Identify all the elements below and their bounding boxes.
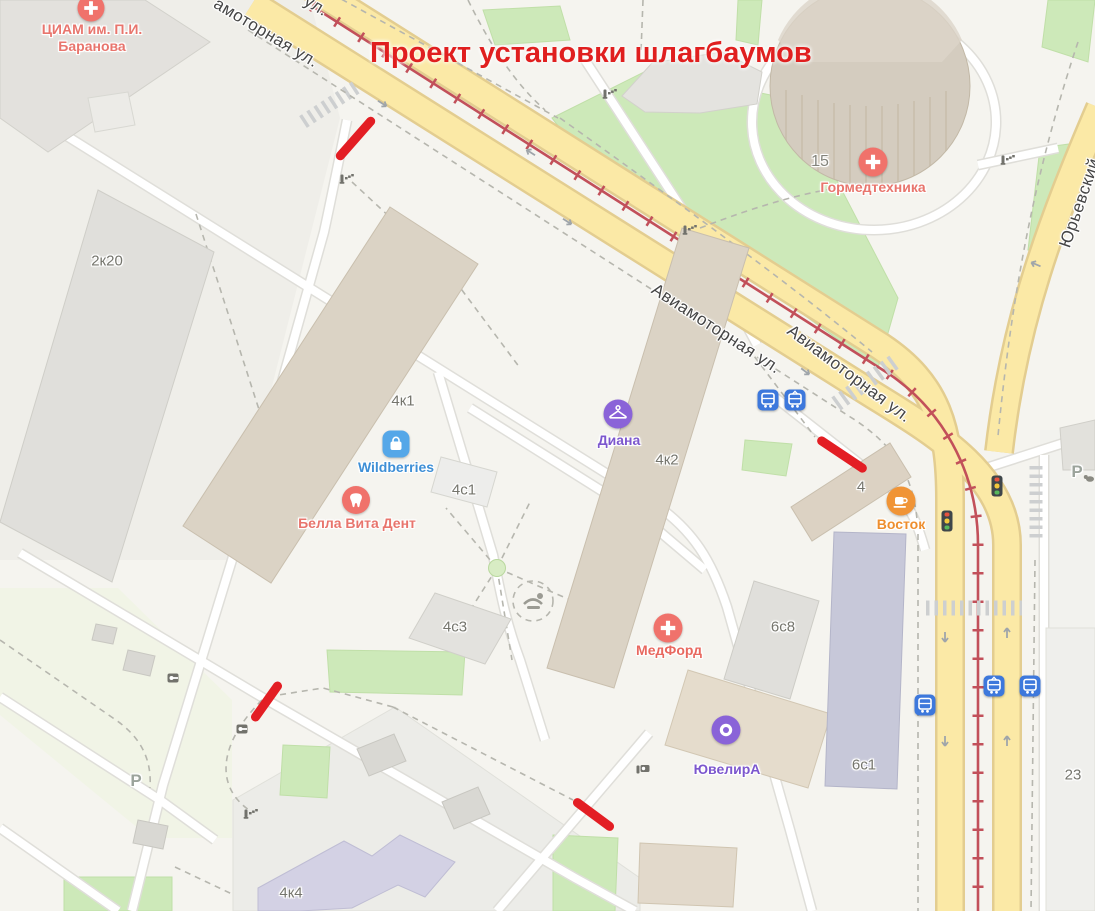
- traffic-light-icon: [942, 511, 953, 532]
- barrier-gate-icon: [339, 170, 356, 185]
- barrier-gate-icon: [1000, 151, 1017, 166]
- building-label-6s1: 6с1: [852, 757, 876, 774]
- traffic-light-icon: [992, 476, 1003, 497]
- building-label-4s3: 4с3: [443, 619, 467, 636]
- building-6s1: [825, 532, 906, 789]
- building-label-4s1: 4с1: [452, 482, 476, 499]
- map-canvas[interactable]: Проект установки шлагбаумов Авиамоторная…: [0, 0, 1095, 911]
- building-label-4: 4: [857, 479, 865, 496]
- parking-label[interactable]: P: [130, 771, 141, 791]
- building-6s8: [724, 581, 819, 699]
- ciam-label-line1[interactable]: ЦИАМ им. П.И.: [42, 21, 143, 37]
- diana-label[interactable]: Диана: [598, 432, 641, 448]
- building-bottom-tan: [638, 843, 737, 907]
- bella-dental-icon[interactable]: [342, 486, 370, 514]
- ciam-medical-icon[interactable]: [78, 0, 105, 22]
- wildberries-shopping-icon[interactable]: [383, 431, 410, 458]
- courtyard-circle: [489, 560, 506, 577]
- barrier-gate-icon: [602, 85, 619, 100]
- vostok-label[interactable]: Восток: [877, 516, 926, 532]
- building-ciam-annex: [88, 92, 135, 132]
- tram-stop-icon[interactable]: [984, 676, 1005, 697]
- yuvelira-label[interactable]: ЮвелирА: [694, 761, 761, 777]
- medford-medical-icon[interactable]: [654, 614, 683, 643]
- vostok-cafe-icon[interactable]: [887, 487, 916, 516]
- playground-icon: [524, 593, 543, 609]
- wildberries-label[interactable]: Wildberries: [358, 459, 434, 475]
- barrier-booth-icon: [635, 761, 652, 776]
- gormed-medical-icon[interactable]: [859, 148, 888, 177]
- barrier-booth-icon: [234, 721, 251, 736]
- yuvelira-ring-icon[interactable]: [712, 716, 741, 745]
- dog-park-icon: [1083, 470, 1095, 488]
- building-label-4k4: 4к4: [279, 885, 302, 902]
- bella-label[interactable]: Белла Вита Дент: [298, 515, 416, 531]
- small-building-4: [92, 624, 117, 644]
- bus-stop-icon[interactable]: [915, 695, 936, 716]
- diana-hanger-icon[interactable]: [604, 400, 633, 429]
- barrier-gate-icon: [682, 221, 699, 236]
- barrier-gate-icon: [243, 805, 260, 820]
- building-label-6s8: 6с8: [771, 619, 795, 636]
- map-title: Проект установки шлагбаумов: [370, 37, 812, 70]
- medford-label[interactable]: МедФорд: [636, 642, 702, 658]
- tram-stop-icon[interactable]: [785, 390, 806, 411]
- gormed-label[interactable]: Гормедтехника: [820, 179, 925, 195]
- building-label-4k2: 4к2: [655, 452, 678, 469]
- ciam-label-line2[interactable]: Баранова: [58, 38, 125, 54]
- building-label-2k20: 2к20: [91, 253, 123, 270]
- map-base-layer: [0, 0, 1095, 911]
- building-label-4k1: 4к1: [391, 393, 414, 410]
- barrier-booth-icon: [165, 670, 182, 685]
- building-label-23: 23: [1065, 767, 1082, 784]
- building-label-15: 15: [811, 153, 829, 171]
- bus-stop-icon[interactable]: [758, 390, 779, 411]
- bus-stop-icon[interactable]: [1020, 676, 1041, 697]
- parking-label[interactable]: P: [1071, 462, 1082, 482]
